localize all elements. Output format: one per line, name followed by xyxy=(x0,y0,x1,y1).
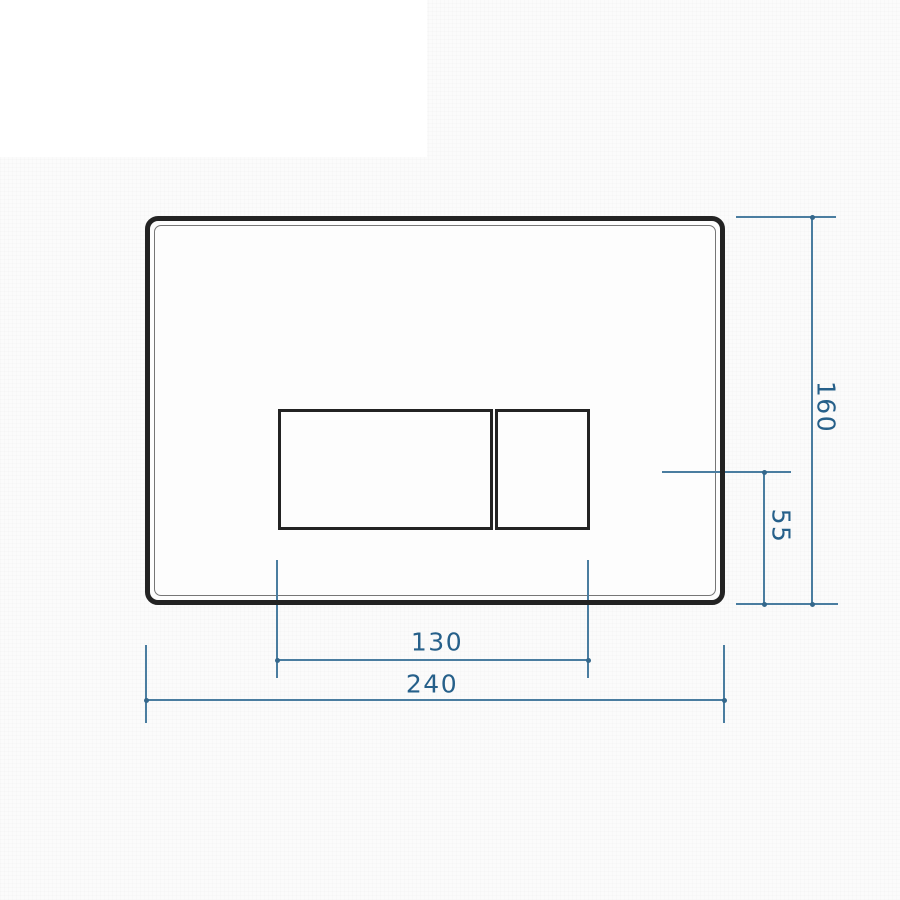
background-patch xyxy=(0,0,427,157)
dim-130-line xyxy=(277,659,588,661)
dim-tick xyxy=(144,698,149,703)
dim-tick xyxy=(722,698,727,703)
dim-240-extension-left xyxy=(145,645,147,723)
dim-55-line xyxy=(763,472,765,604)
drawing-canvas: 160 55 130 240 xyxy=(0,0,900,900)
dim-tick xyxy=(762,470,767,475)
dim-tick xyxy=(810,602,815,607)
dim-button-axis-label: 55 xyxy=(769,509,794,544)
dim-buttons-width-label: 130 xyxy=(411,630,463,655)
dim-plate-height-label: 160 xyxy=(814,381,839,433)
small-flush-button xyxy=(495,409,590,530)
dim-tick xyxy=(586,658,591,663)
dim-tick xyxy=(762,602,767,607)
dim-160-extension-top xyxy=(736,216,836,218)
dim-tick xyxy=(275,658,280,663)
large-flush-button xyxy=(278,409,493,530)
dim-plate-width-label: 240 xyxy=(406,672,458,697)
dim-tick xyxy=(810,215,815,220)
dim-240-extension-right xyxy=(723,645,725,723)
dim-240-line xyxy=(146,699,724,701)
dim-bottom-extension-shared xyxy=(736,603,838,605)
